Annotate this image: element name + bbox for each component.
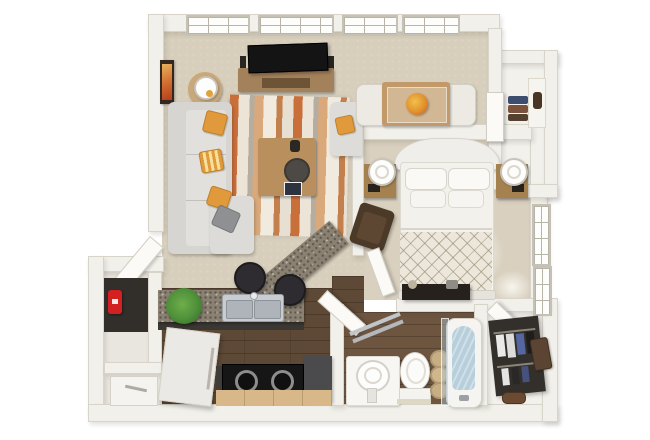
hanging-shirt-white	[501, 368, 510, 386]
bedroom-window-lower	[533, 266, 552, 316]
armchair-seat	[356, 211, 387, 245]
bottom-exterior-wall	[88, 404, 558, 422]
drum-lamp-right	[500, 158, 528, 186]
bed-pillow	[448, 168, 490, 190]
tv	[248, 43, 329, 74]
sink-pedestal-stem	[367, 388, 377, 403]
bathtub	[446, 318, 482, 408]
dining-window-1	[342, 15, 398, 36]
lamp-inner-ring	[507, 165, 521, 179]
bed-pillow	[410, 190, 446, 208]
toilet-seat	[406, 358, 426, 384]
dining-window-2	[402, 15, 460, 36]
bed-pillow	[405, 168, 447, 190]
hanging-garment-dark	[511, 367, 520, 385]
sink-basin-right	[254, 300, 281, 319]
sink-bowl	[364, 367, 382, 384]
floor-plan	[0, 0, 650, 440]
tub-faucet-icon	[459, 395, 469, 401]
lamp-inner-ring	[375, 165, 389, 179]
orange-pillow-chair	[334, 114, 355, 135]
wall-art-canvas	[162, 64, 172, 100]
entry-nook-left-wall	[88, 256, 104, 412]
folded-clothes-brown	[508, 105, 528, 113]
utility-pipe	[125, 385, 147, 393]
bedroom-window	[532, 204, 551, 266]
hanging-garment-blue	[516, 333, 526, 355]
laundry-closet-wall	[104, 362, 162, 374]
dining-chair-right	[448, 84, 476, 126]
dining-chair-left	[356, 84, 384, 126]
hanging-shirt-white	[506, 333, 516, 358]
hall-closet-right-wall	[544, 50, 558, 198]
refrigerator	[158, 327, 221, 407]
bedroom-bathroom-wall	[396, 298, 548, 312]
hanging-shirt-white	[496, 334, 506, 357]
dresser-decor	[446, 280, 458, 289]
tub-water	[452, 326, 475, 390]
folded-clothes-dark	[508, 114, 528, 121]
decor-vase	[290, 140, 300, 152]
red-appliance-label	[112, 299, 118, 304]
living-window-2	[258, 15, 334, 36]
potted-plant	[166, 288, 202, 324]
wall-art	[160, 60, 174, 104]
floral-centerpiece	[406, 93, 428, 115]
toilet	[400, 352, 430, 390]
tan-cabinet-face	[216, 390, 332, 406]
shoes	[502, 392, 526, 404]
orange-chevron-pillow	[198, 148, 224, 174]
table-lamp	[194, 76, 218, 100]
living-window-1	[186, 15, 250, 36]
hall-closet-door	[486, 92, 504, 142]
sheet-fold-line	[400, 228, 492, 230]
decor-bowl	[284, 158, 310, 184]
fridge-handle	[206, 348, 214, 390]
coffee-table	[258, 138, 316, 196]
lamp-decor	[206, 90, 213, 97]
faucet-icon	[250, 292, 258, 300]
bed-pillow	[448, 190, 484, 208]
decor-book	[284, 182, 302, 196]
toilet-tray	[397, 399, 431, 404]
hanging-garment-blue	[521, 366, 530, 383]
shower-glass	[441, 318, 449, 406]
drum-lamp-left	[368, 158, 396, 186]
kitchen-sink	[222, 294, 284, 322]
garment-bag	[533, 92, 542, 109]
utility-appliance	[110, 376, 158, 406]
left-exterior-wall	[148, 14, 164, 232]
sink-basin-left	[226, 300, 253, 319]
console-shelf-line	[262, 78, 310, 88]
red-appliance	[108, 290, 122, 314]
folded-clothes-navy	[508, 96, 528, 104]
bar-stool-1	[234, 262, 266, 294]
dresser-decor-2	[408, 280, 417, 289]
